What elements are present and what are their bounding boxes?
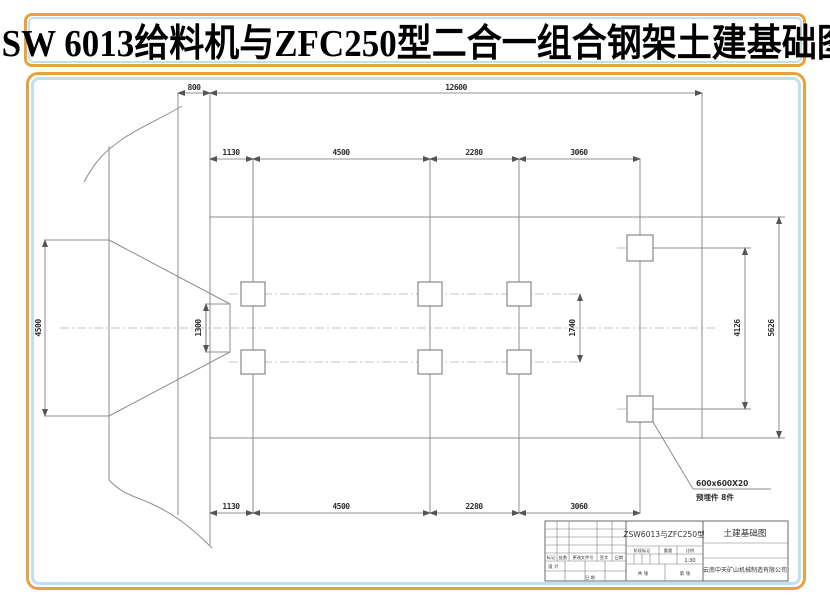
dim-1130-top: 1130 (222, 148, 240, 157)
stage-label: 阶段标记 (634, 547, 652, 554)
company-name: 云南中天矿山机械制造有限公司 (703, 566, 787, 574)
dim-3060-bottom: 3060 (570, 502, 588, 511)
rev-sign-label: 签字 (600, 554, 608, 560)
annotation-size: 600x600X20 (696, 479, 748, 488)
grid-lines (45, 93, 785, 545)
foundation-drawing: 800 12600 1130 4500 2280 3060 1130 4500 … (34, 80, 798, 582)
anchor-pad (627, 235, 653, 261)
anchor-pad (507, 282, 531, 306)
dim-1740: 1740 (568, 319, 577, 337)
page-title: ZSW 6013给料机与ZFC250型二合一组合钢架土建基础图 (0, 12, 830, 67)
anchor-pad (241, 350, 265, 374)
title-block: 标记 处数 更改文件号 签字 日期 设 计 日 期 (545, 521, 788, 581)
anchor-pad (507, 350, 531, 374)
dim-3060-top: 3060 (570, 148, 588, 157)
date-label: 日 期 (585, 575, 595, 581)
anchor-pads (241, 235, 653, 422)
dim-1300: 1300 (194, 319, 203, 337)
dimension-lines (45, 93, 779, 513)
weight-label: 重量 (664, 547, 672, 554)
rev-date-label: 日期 (615, 555, 623, 561)
dim-4500-left: 4500 (34, 319, 43, 337)
drawing-canvas-inner: 800 12600 1130 4500 2280 3060 1130 4500 … (31, 77, 801, 585)
rev-count-label: 处数 (559, 554, 568, 561)
dim-2280-top: 2280 (465, 148, 483, 157)
scale-value: 1:30 (684, 558, 695, 564)
dim-12600: 12600 (445, 83, 467, 92)
centerlines (60, 248, 715, 409)
design-label: 设 计 (548, 563, 559, 570)
dimension-labels: 800 12600 1130 4500 2280 3060 1130 4500 … (34, 83, 776, 511)
drawing-canvas: 800 12600 1130 4500 2280 3060 1130 4500 … (26, 72, 806, 590)
anchor-pad (241, 282, 265, 306)
rev-mark-label: 标记 (547, 554, 556, 561)
annotation-qty: 预埋件 8件 (696, 492, 734, 502)
break-lines (84, 106, 212, 548)
anchor-pad (627, 396, 653, 422)
scale-label: 比例 (686, 547, 694, 554)
sheet-number: 第 张 (680, 570, 691, 577)
rev-file-label: 更改文件号 (573, 554, 594, 561)
title-block-left-grid (545, 521, 626, 581)
drawing-title-bar-inner: ZSW 6013给料机与ZFC250型二合一组合钢架土建基础图 (28, 17, 802, 63)
anchor-pad (418, 282, 442, 306)
sheet-title: 土建基础图 (724, 527, 767, 539)
page: ZSW 6013给料机与ZFC250型二合一组合钢架土建基础图 (0, 0, 830, 596)
dim-4500-bottom: 4500 (332, 502, 350, 511)
dim-1130-bottom: 1130 (222, 502, 240, 511)
dim-4126: 4126 (733, 319, 742, 337)
dim-800: 800 (188, 83, 202, 92)
dim-4500-top: 4500 (332, 148, 350, 157)
dim-5626: 5626 (767, 319, 776, 337)
leader-annotation: 600x600X20 预埋件 8件 (653, 422, 771, 502)
model-designation: ZSW6013与ZFC250型 (623, 530, 705, 539)
dim-2280-bottom: 2280 (465, 502, 483, 511)
drawing-title-bar: ZSW 6013给料机与ZFC250型二合一组合钢架土建基础图 (24, 13, 806, 67)
title-block-right-grid (703, 543, 788, 558)
anchor-pad (418, 350, 442, 374)
hopper-outline (109, 146, 230, 480)
sheet-total: 共 张 (638, 570, 649, 577)
